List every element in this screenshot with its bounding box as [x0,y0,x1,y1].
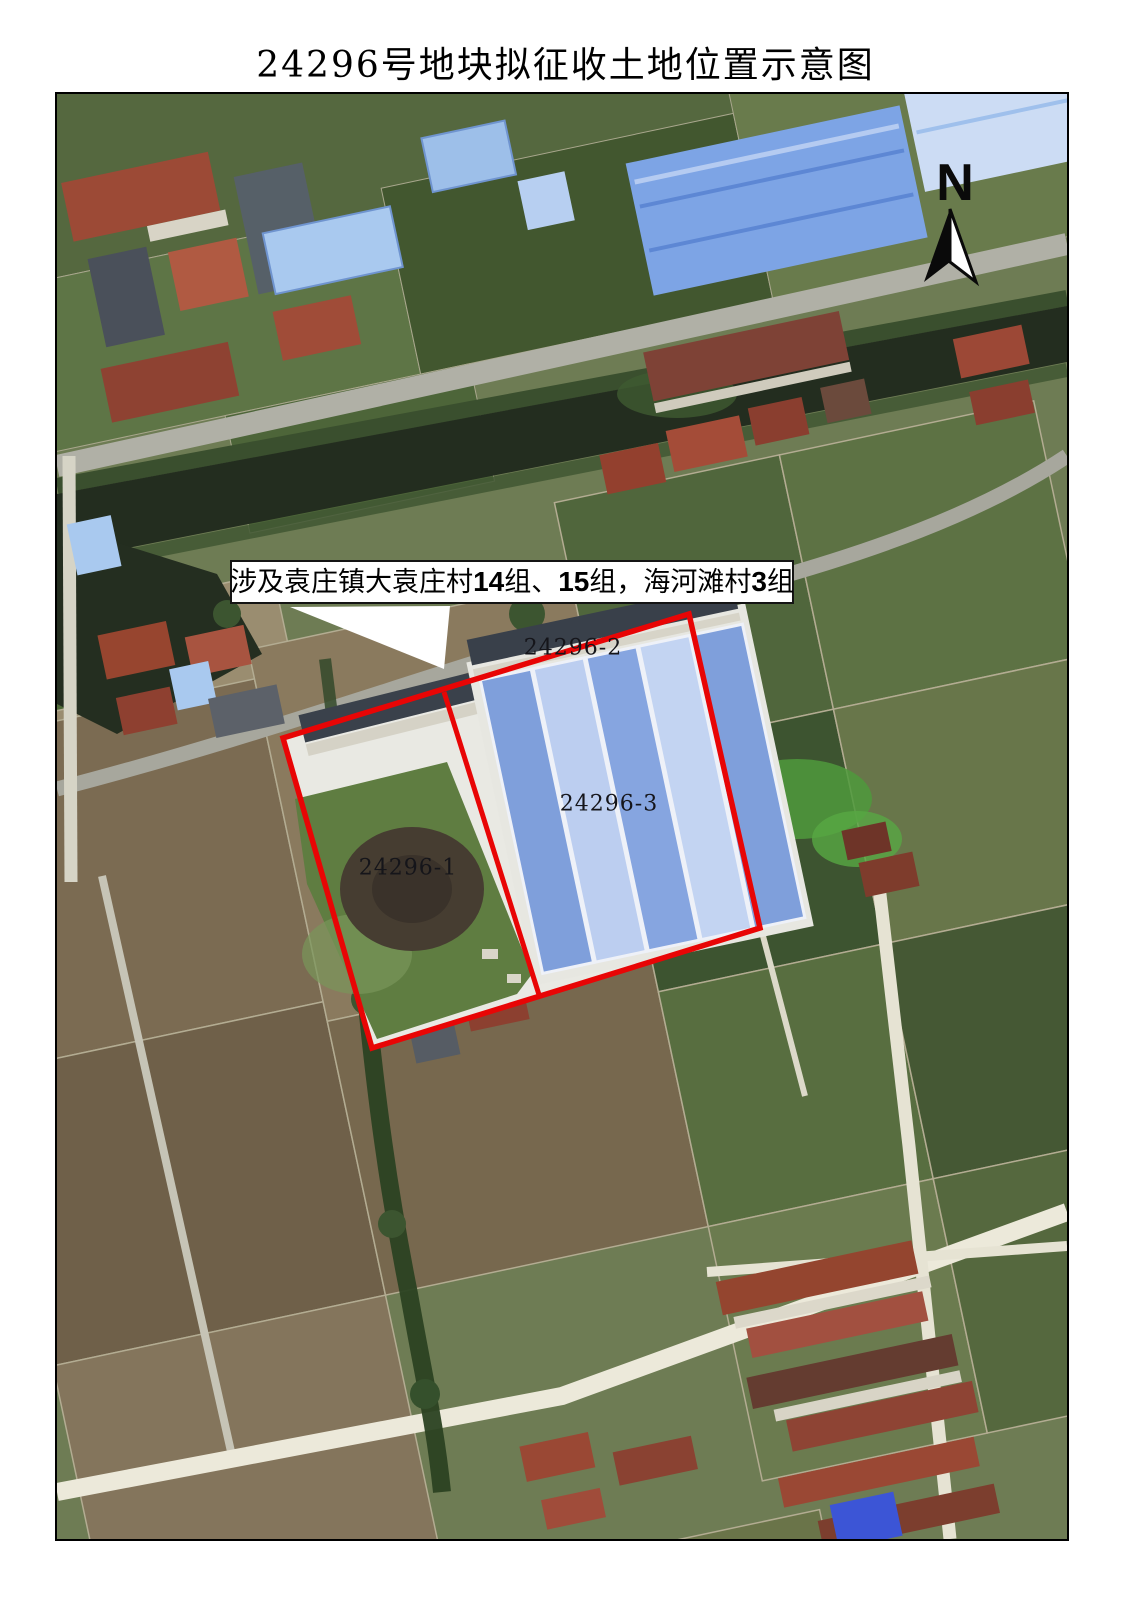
callout-text-segment: 涉及袁庄镇大袁庄村 [230,567,473,598]
plot-label-24296-3: 24296-3 [560,792,658,817]
callout-text-segment: 3 [751,566,767,597]
page: { "page": { "title": "24296号地块拟征收土地位置示意图… [0,0,1131,1600]
callout-text-segment: 14 [473,566,504,597]
callout-text-segment: 组、 [504,567,558,598]
north-arrow-label: N [936,154,974,212]
callout-label: 涉及袁庄镇大袁庄村14组、15组，海河滩村3组 [230,560,794,604]
callout-text-segment: 组 [767,567,794,598]
satellite-backdrop: N [57,94,1067,1539]
plot-label-24296-1: 24296-1 [359,856,457,881]
callout-text-segment: 15 [558,566,589,597]
road-left-vertical [69,456,71,882]
page-title: 24296号地块拟征收土地位置示意图 [0,36,1131,88]
callout-text-segment: 组，海河滩村 [589,567,751,598]
plot-label-24296-2: 24296-2 [524,636,622,661]
callout-text: 涉及袁庄镇大袁庄村14组、15组，海河滩村3组 [230,568,794,596]
map-area: N 涉及袁庄镇大袁庄村14组、15组，海河滩村3组 24296-2 24296-… [55,92,1069,1541]
